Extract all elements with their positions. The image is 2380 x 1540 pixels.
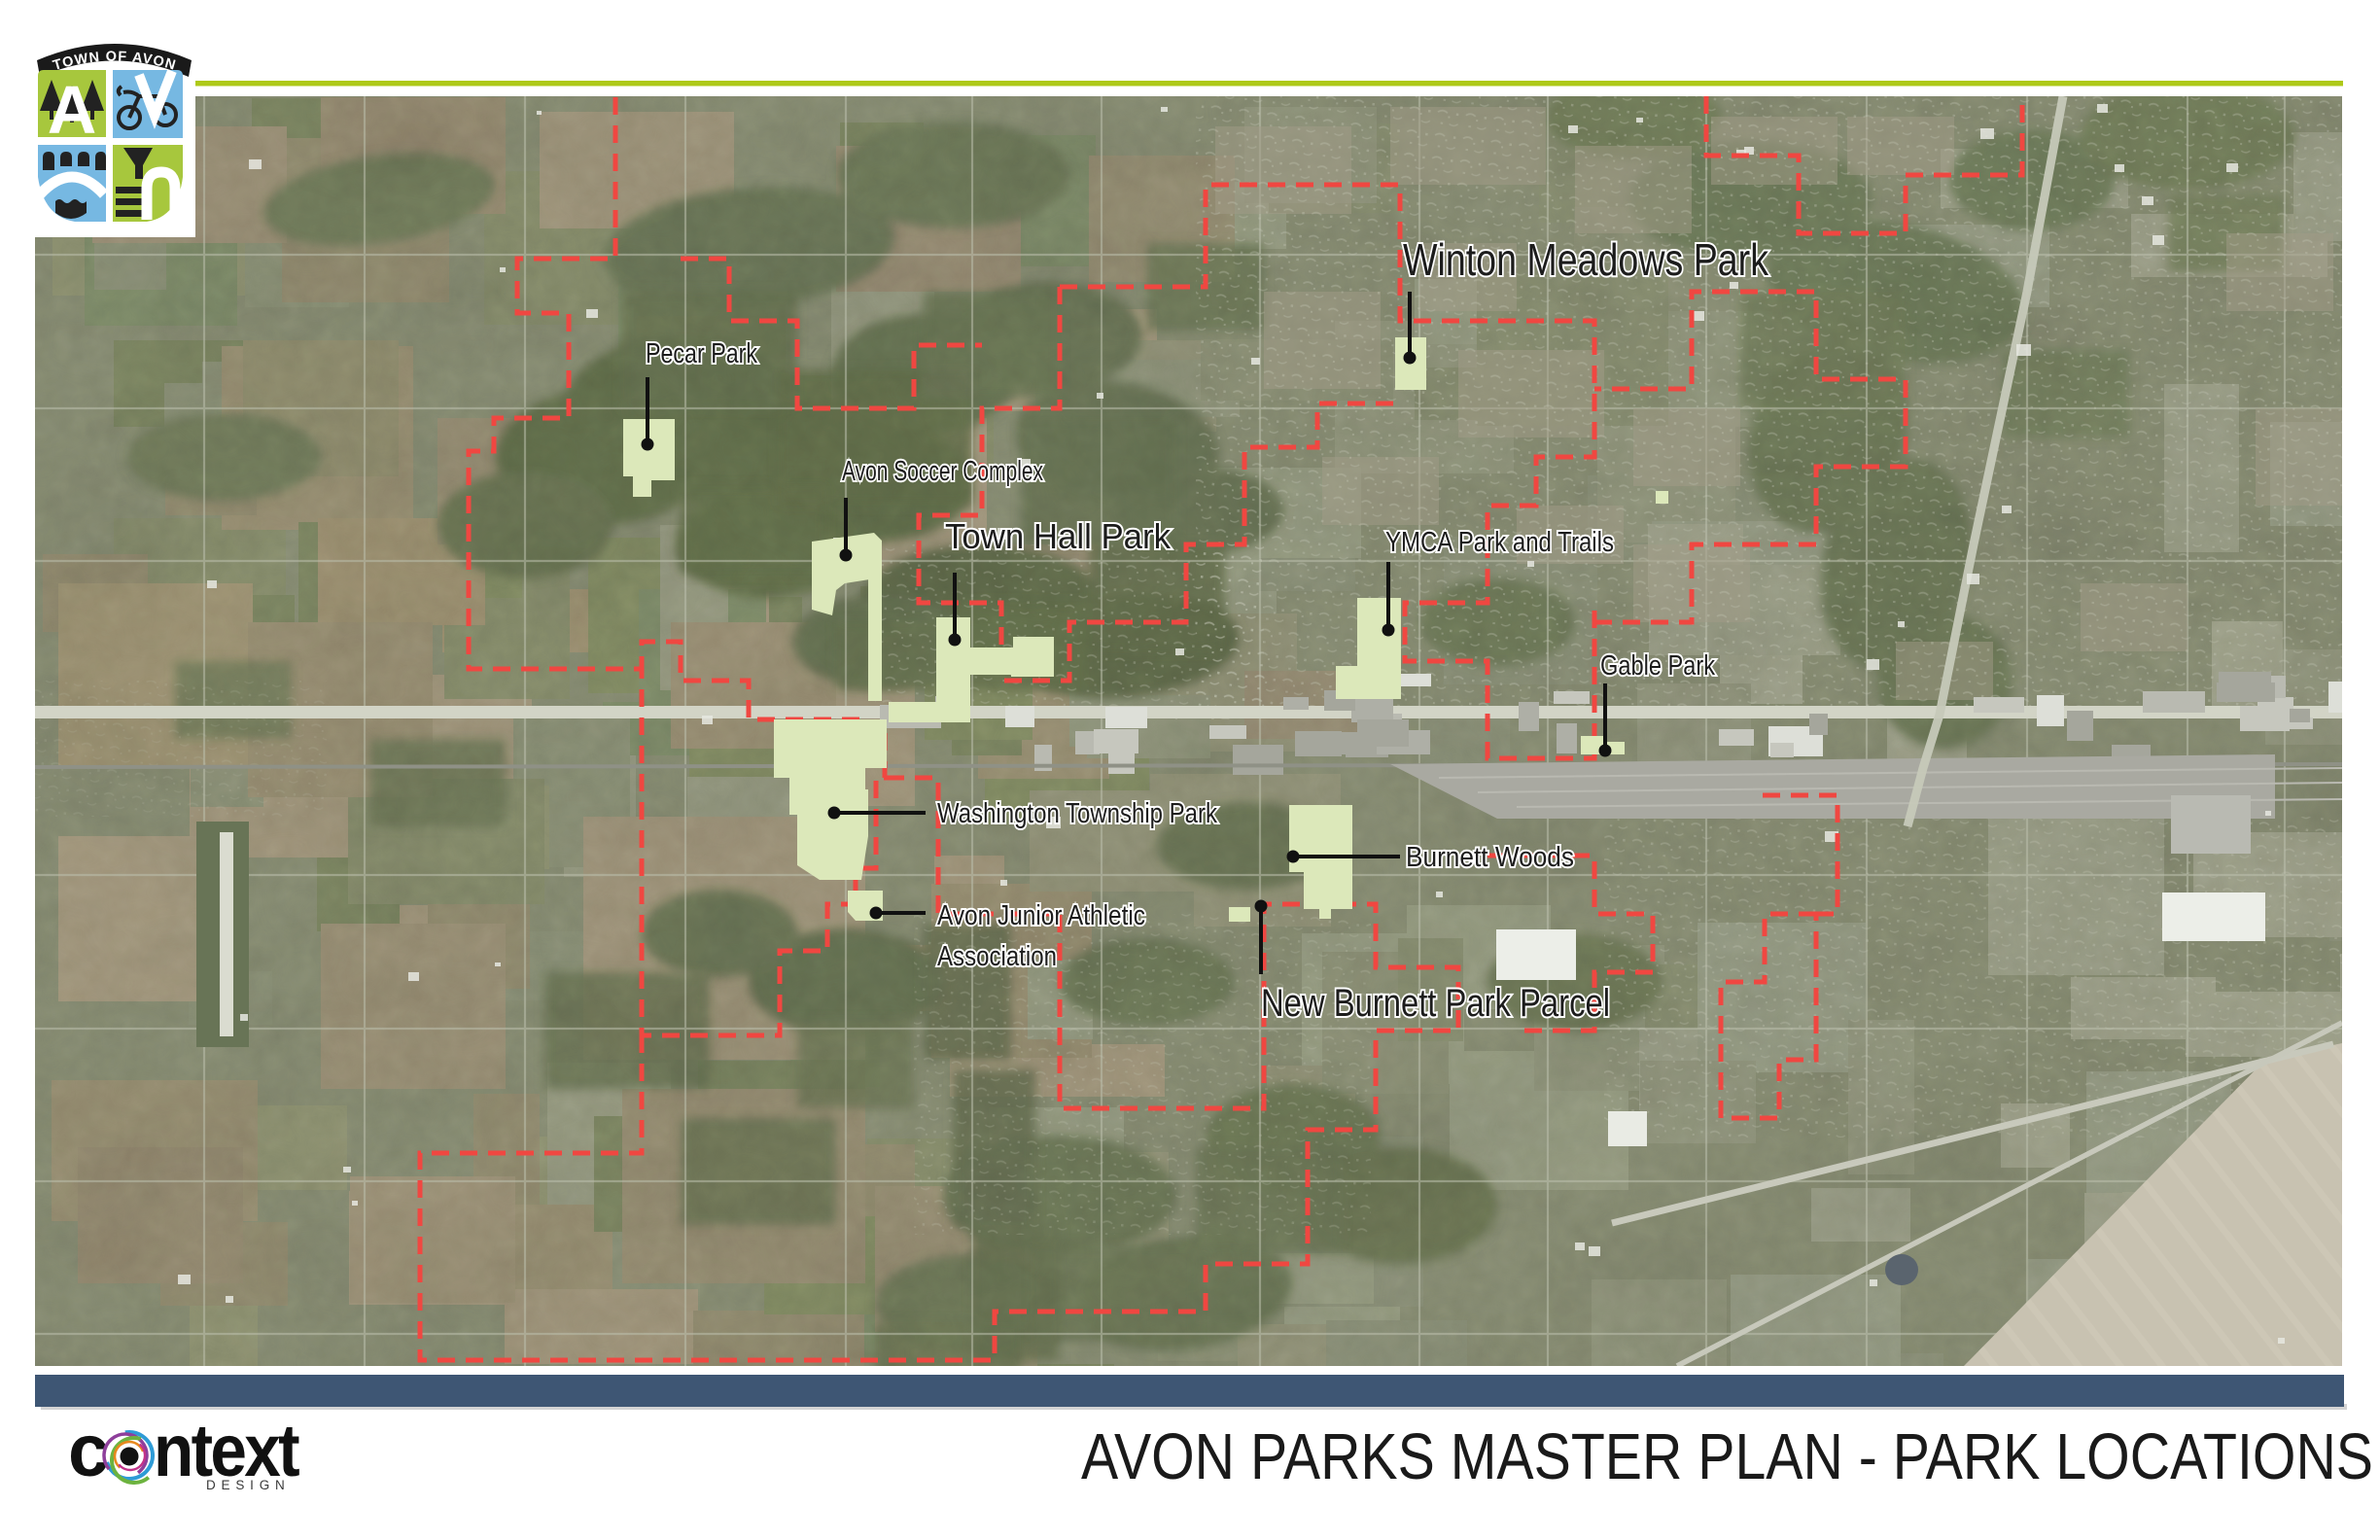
svg-text:Association: Association [937,941,1057,972]
svg-text:Burnett Woods: Burnett Woods [1406,842,1574,873]
svg-text:Pecar Park: Pecar Park [646,338,757,369]
svg-text:Gable Park: Gable Park [1600,650,1715,682]
svg-text:A: A [48,72,97,148]
svg-text:New Burnett Park Parcel: New Burnett Park Parcel [1261,982,1610,1025]
svg-text:Avon Soccer Complex: Avon Soccer Complex [842,456,1043,487]
svg-text:DESIGN: DESIGN [206,1478,291,1492]
svg-text:Washington Township Park: Washington Township Park [937,798,1217,829]
svg-text:YMCA Park and Trails: YMCA Park and Trails [1385,527,1614,558]
svg-text:AVON PARKS MASTER PLAN - PARK: AVON PARKS MASTER PLAN - PARK LOCATIONS [1081,1420,2373,1493]
svg-text:Winton Meadows Park: Winton Meadows Park [1403,234,1769,285]
svg-text:Town Hall Park: Town Hall Park [945,516,1172,556]
svg-text:c: c [68,1410,108,1492]
svg-text:Avon Junior Athletic: Avon Junior Athletic [937,900,1145,931]
